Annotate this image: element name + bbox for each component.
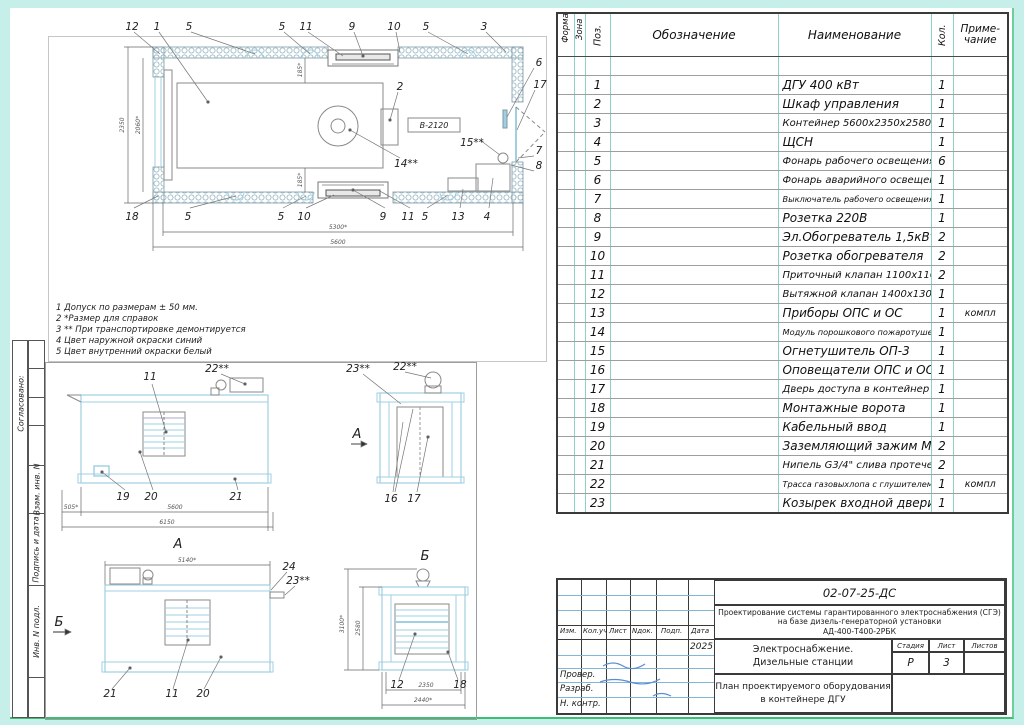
spec-header-row: Формат Зона Поз. Обозначение Наименовани… <box>557 13 1008 57</box>
svg-text:11: 11 <box>143 371 156 383</box>
spec-row: 9Эл.Обогреватель 1,5кВт2 <box>557 228 1008 247</box>
project-line-1: Проектирование системы гарантированного … <box>718 608 1001 617</box>
col-ndok: Nдок. <box>632 627 653 635</box>
col-kol: Кол. <box>931 13 953 57</box>
svg-text:А: А <box>352 427 362 442</box>
svg-text:2440*: 2440* <box>414 697 432 704</box>
svg-text:5: 5 <box>185 211 192 223</box>
spec-row: 5Фонарь рабочего освещения6 <box>557 152 1008 171</box>
svg-text:5: 5 <box>278 211 285 223</box>
svg-text:5: 5 <box>279 21 286 33</box>
view-a <box>102 568 284 672</box>
svg-text:3: 3 <box>481 21 488 33</box>
spec-row: 11Приточный клапан 1100х11002 <box>557 266 1008 285</box>
col-oboznachenie: Обозначение <box>610 13 778 57</box>
spec-row: 17Дверь доступа в контейнер1 <box>557 380 1008 399</box>
svg-text:11: 11 <box>299 21 312 33</box>
svg-text:23**: 23** <box>346 363 370 375</box>
stamp-cell-empty <box>29 426 44 466</box>
spec-row: 16Оповещатели ОПС и ОС1 <box>557 361 1008 380</box>
svg-text:12: 12 <box>125 21 139 33</box>
svg-text:18: 18 <box>453 679 467 691</box>
svg-text:19: 19 <box>116 491 130 503</box>
container-walls <box>153 47 523 203</box>
svg-text:8: 8 <box>536 160 543 172</box>
dim-h-outer: 2350 <box>119 117 126 132</box>
top-louver-vent <box>328 50 398 66</box>
role-nkontr: Н. контр. <box>560 699 601 709</box>
spec-row: 13Приборы ОПС и ОС1компл <box>557 304 1008 323</box>
note-line: 2 *Размер для справок <box>56 314 316 325</box>
svg-text:21: 21 <box>229 491 242 503</box>
side-view <box>67 378 271 483</box>
sheets-value <box>964 652 1005 674</box>
svg-text:2350: 2350 <box>418 682 433 689</box>
svg-text:5: 5 <box>422 211 429 223</box>
specification-table: Формат Зона Поз. Обозначение Наименовани… <box>556 12 1007 510</box>
col-poz: Поз. <box>585 13 610 57</box>
drawing-sheet-page: Согласовано: Взам. инв. N Подпись и дата… <box>0 0 1024 725</box>
svg-text:13: 13 <box>451 211 464 223</box>
section-line-1: Электроснабжение. <box>753 644 853 656</box>
col-list: Лист <box>609 627 627 635</box>
svg-text:5: 5 <box>423 21 430 33</box>
doc-number: 02-07-25-ДС <box>714 580 1005 605</box>
role-prover: Провер. <box>560 670 595 680</box>
col-izm: Изм. <box>560 627 576 635</box>
revision-grid: Изм. Кол.уч Лист Nдок. Подп. Дата 2025 П… <box>558 580 714 713</box>
spec-row: 2Шкаф управления1 <box>557 95 1008 114</box>
spec-row-empty <box>557 57 1008 76</box>
svg-text:12: 12 <box>390 679 404 691</box>
title-block: Изм. Кол.уч Лист Nдок. Подп. Дата 2025 П… <box>556 578 1007 715</box>
spec-row: 14Модуль порошкового пожаротушения1 <box>557 323 1008 342</box>
project-description: Проектирование системы гарантированного … <box>714 605 1005 639</box>
drawing-notes: 1 Допуск по размерам ± 50 мм. 2 *Размер … <box>56 303 316 358</box>
date-value: 2025 <box>689 642 714 652</box>
svg-text:16: 16 <box>384 493 398 505</box>
stamp-cell-inv: Инв. N подл. <box>29 586 44 678</box>
note-line: 3 ** При транспортировке демонтируется <box>56 325 316 336</box>
spec-row: 15Огнетушитель ОП-31 <box>557 342 1008 361</box>
spec-row: 4ЩСН1 <box>557 133 1008 152</box>
dim-w-inner: 5300* <box>329 224 347 231</box>
svg-text:23**: 23** <box>286 575 310 587</box>
svg-text:5: 5 <box>186 21 193 33</box>
section-cell: Электроснабжение. Дизельные станции <box>714 639 892 674</box>
col-data: Дата <box>691 627 709 635</box>
svg-text:5140*: 5140* <box>178 557 196 564</box>
svg-text:24: 24 <box>282 561 295 573</box>
svg-text:22**: 22** <box>393 362 417 373</box>
svg-text:18: 18 <box>125 211 139 223</box>
plan-title-cell: План проектируемого оборудования в конте… <box>714 674 892 713</box>
spec-row: 10Розетка обогревателя2 <box>557 247 1008 266</box>
svg-text:4: 4 <box>484 211 491 223</box>
spec-row: 8Розетка 220В1 <box>557 209 1008 228</box>
spec-row: 12Вытяжной клапан 1400х13001 <box>557 285 1008 304</box>
project-line-2: на базе дизель-генераторной установки <box>718 617 1001 626</box>
view-b <box>379 569 468 670</box>
height-mark: В-2120 <box>408 118 460 132</box>
control-cabinet <box>381 109 398 145</box>
stamp-cell-empty <box>29 341 44 369</box>
stamp-cell-vzam: Взам. инв. N <box>29 466 44 514</box>
stamp-cell-empty <box>29 398 44 426</box>
sidebar-soglasovano-column: Согласовано: <box>12 340 28 718</box>
svg-text:10: 10 <box>297 211 311 223</box>
spec-row: 20Заземляющий зажим М162 <box>557 437 1008 456</box>
note-line: 5 Цвет внутренний окраски белый <box>56 347 316 358</box>
section-line-2: Дизельные станции <box>753 657 853 669</box>
stamp-cell-podpis: Подпись и дата <box>29 514 44 586</box>
svg-text:17: 17 <box>407 493 421 505</box>
stage-label: Стадия <box>892 639 929 652</box>
dim-w-outer: 5600 <box>330 239 345 246</box>
svg-text:Б: Б <box>421 549 430 564</box>
svg-text:2580: 2580 <box>355 620 362 635</box>
svg-text:9: 9 <box>349 21 356 33</box>
dgu-unit <box>177 83 383 168</box>
plan-title-1: План проектируемого оборудования <box>715 681 890 693</box>
approval-empty-cell <box>892 674 1005 713</box>
svg-text:17: 17 <box>533 79 547 91</box>
mounting-gate <box>155 70 172 180</box>
emergency-lamp <box>503 110 507 128</box>
spec-row: 6Фонарь аварийного освещения1 <box>557 171 1008 190</box>
col-zona: Зона <box>574 13 585 57</box>
svg-text:11: 11 <box>401 211 414 223</box>
project-line-3: АД-400-Т400-2РБК <box>718 627 1001 636</box>
svg-text:20: 20 <box>196 688 210 700</box>
stamp-cell-empty <box>29 678 44 719</box>
col-koluch: Кол.уч <box>583 627 607 635</box>
stamp-cell-empty <box>29 369 44 398</box>
col-primechanie: Приме-чание <box>953 13 1008 57</box>
note-line: 4 Цвет наружной окраски синий <box>56 336 316 347</box>
signature-scribbles <box>598 656 693 706</box>
spec-row: 19Кабельный ввод1 <box>557 418 1008 437</box>
end-view-leaders <box>351 372 431 492</box>
spec-row: 7Выключатель рабочего освещения1 <box>557 190 1008 209</box>
svg-text:6: 6 <box>536 57 543 69</box>
shsn-panel <box>476 164 510 191</box>
svg-text:505*: 505* <box>64 504 78 511</box>
svg-text:2: 2 <box>397 81 404 93</box>
sheet-value: 3 <box>929 652 964 674</box>
sheets-label: Листов <box>964 639 1005 652</box>
spec-row: 23Козырек входной двери1 <box>557 494 1008 514</box>
role-razrab: Разраб. <box>560 684 593 694</box>
stage-value: Р <box>892 652 929 674</box>
spec-row: 18Монтажные ворота1 <box>557 399 1008 418</box>
svg-text:1: 1 <box>154 21 161 33</box>
side-views-drawing: 505* 5600 6150 11 22** 19 20 21 <box>45 362 475 718</box>
svg-text:22**: 22** <box>205 363 229 375</box>
plan-title-2: в контейнере ДГУ <box>715 694 890 706</box>
col-naimenovanie: Наименование <box>778 13 931 57</box>
dim-off-top: 185* <box>297 63 304 77</box>
side-view-leaders <box>101 374 247 490</box>
svg-text:3100*: 3100* <box>339 615 346 633</box>
end-view <box>377 372 464 483</box>
svg-text:7: 7 <box>536 145 543 157</box>
sidebar-stamp-column: Взам. инв. N Подпись и дата Инв. N подл. <box>28 340 45 718</box>
dim-off-bot: 185* <box>297 173 304 187</box>
svg-text:20: 20 <box>144 491 158 503</box>
col-podp: Подп. <box>661 627 682 635</box>
note-line: 1 Допуск по размерам ± 50 мм. <box>56 303 316 314</box>
svg-text:5600: 5600 <box>167 504 182 511</box>
svg-text:А: А <box>173 537 183 552</box>
dim-h-inner: 2060* <box>135 116 142 134</box>
svg-text:15**: 15** <box>460 137 484 149</box>
svg-text:21: 21 <box>103 688 116 700</box>
spec-row: 22Трасса газовыхлопа с глушителем1компл <box>557 475 1008 494</box>
spec-row: 3Контейнер 5600х2350х25801 <box>557 114 1008 133</box>
view-a-dims <box>105 561 270 590</box>
svg-text:10: 10 <box>387 21 401 33</box>
spec-row: 21Нипель G3/4" слива протечек2 <box>557 456 1008 475</box>
spec-row: 1ДГУ 400 кВт1 <box>557 76 1008 95</box>
svg-text:14**: 14** <box>394 158 418 170</box>
svg-text:6150: 6150 <box>159 519 174 526</box>
svg-text:Б: Б <box>55 615 64 630</box>
view-b-dims <box>344 569 465 709</box>
svg-text:9: 9 <box>380 211 387 223</box>
height-mark-label: В-2120 <box>420 121 449 130</box>
col-format: Формат <box>557 13 574 57</box>
svg-text:11: 11 <box>165 688 178 700</box>
sheet-label: Лист <box>929 639 964 652</box>
